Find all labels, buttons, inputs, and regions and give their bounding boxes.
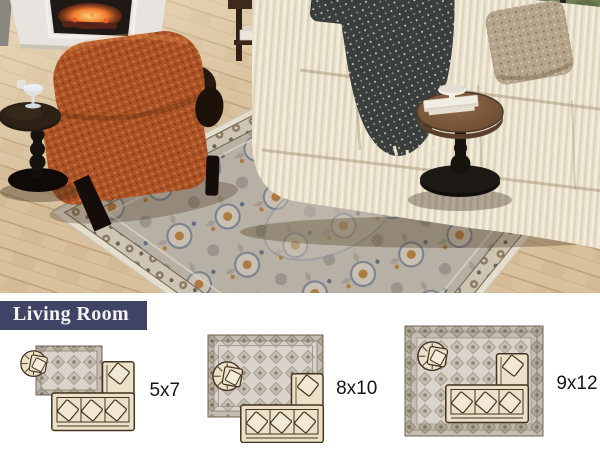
living-room-scene bbox=[0, 0, 600, 293]
rug-layout-8x10 bbox=[204, 333, 329, 443]
size-diagram-9x12: 9x12 bbox=[401, 323, 597, 443]
banner-label: Living Room bbox=[13, 303, 129, 326]
size-label-9x12: 9x12 bbox=[556, 374, 597, 393]
beige-pillow bbox=[484, 0, 576, 86]
size-label-8x10: 8x10 bbox=[336, 379, 377, 398]
size-label-5x7: 5x7 bbox=[149, 381, 180, 400]
product-image: Living Room 5x7 8x10 bbox=[0, 0, 600, 450]
rug-layout-5x7 bbox=[2, 338, 142, 443]
living-room-photo bbox=[0, 0, 600, 293]
size-diagram-8x10: 8x10 bbox=[204, 333, 377, 443]
size-guide: 5x7 8x10 9x12 bbox=[0, 325, 600, 443]
rug-layout-9x12 bbox=[401, 323, 549, 443]
size-diagram-5x7: 5x7 bbox=[2, 338, 180, 443]
